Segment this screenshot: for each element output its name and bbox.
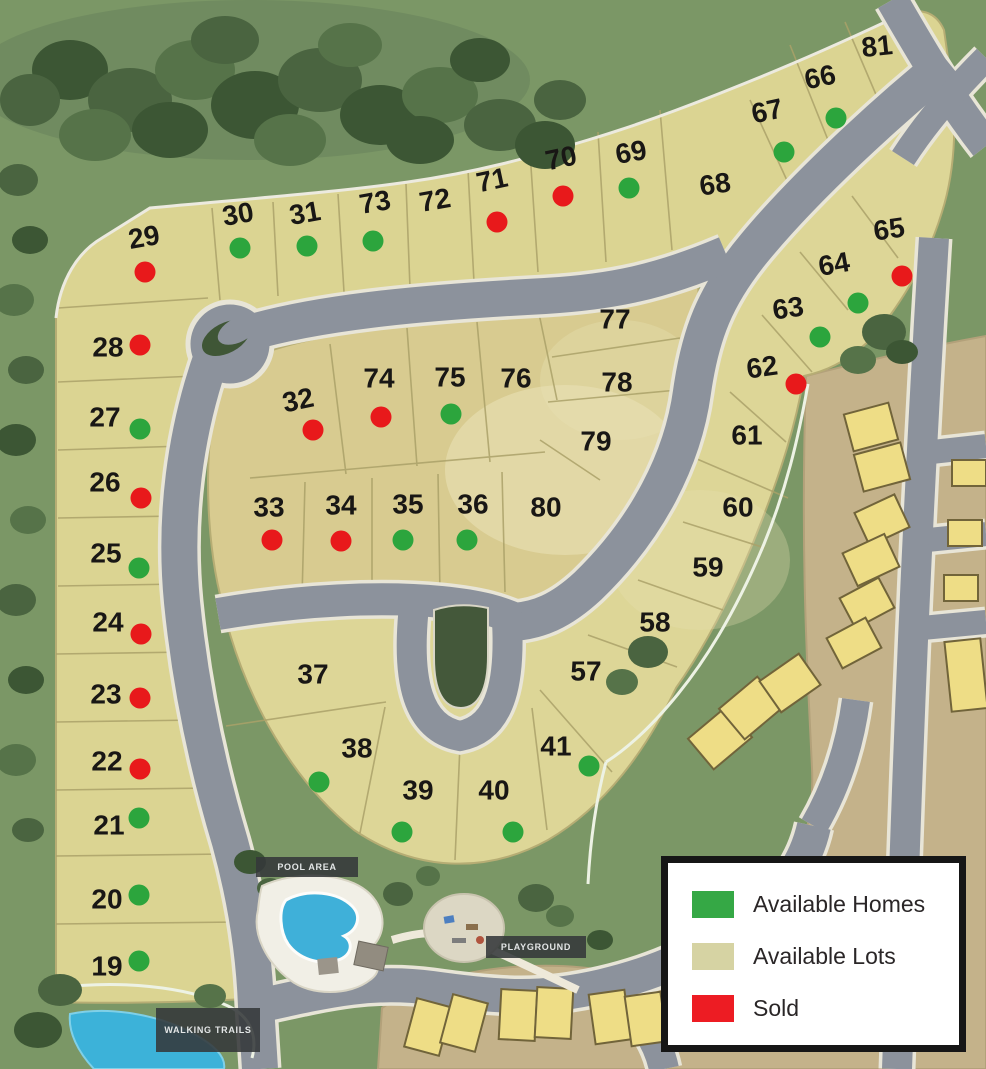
lot-number-label: 72: [417, 182, 453, 218]
lot-status-dot: [892, 266, 913, 287]
house-footprint: [499, 989, 538, 1041]
lot-number-label: 73: [357, 184, 393, 220]
lot-number-label: 31: [287, 195, 323, 231]
lot-status-dot: [230, 238, 251, 259]
lot-status-dot: [503, 822, 524, 843]
lot-number-label: 70: [543, 140, 580, 177]
lot-number-label: 29: [126, 219, 162, 255]
lot-number-label: 59: [692, 552, 723, 583]
lot-status-dot: [135, 262, 156, 283]
lot-status-dot: [826, 108, 847, 129]
lot-status-dot: [303, 420, 324, 441]
house-footprint: [948, 520, 982, 546]
legend-label: Sold: [753, 995, 799, 1022]
lot-number-label: 78: [601, 367, 632, 398]
lot-number-label: 24: [92, 607, 124, 638]
lot-number-label: 34: [325, 490, 357, 521]
lot-status-dot: [392, 822, 413, 843]
lot-number-label: 74: [363, 363, 395, 394]
lot-status-dot: [553, 186, 574, 207]
lot-number-label: 39: [402, 775, 433, 806]
lot-number-label: 68: [697, 166, 732, 201]
lot-80[interactable]: 80: [530, 492, 561, 523]
lot-number-label: 65: [871, 211, 906, 246]
legend: Available Homes Available Lots Sold: [661, 856, 966, 1052]
lot-status-dot: [130, 688, 151, 709]
lot-number-label: 36: [457, 489, 488, 520]
lot-number-label: 38: [341, 733, 372, 764]
legend-item-sold: Sold: [692, 995, 959, 1022]
lot-status-dot: [129, 885, 150, 906]
lot-77[interactable]: 77: [599, 304, 630, 335]
lot-status-dot: [579, 756, 600, 777]
legend-item-available-homes: Available Homes: [692, 891, 959, 918]
lot-number-label: 41: [540, 731, 571, 762]
lot-number-label: 76: [500, 363, 531, 394]
lot-number-label: 62: [744, 349, 779, 384]
lot-number-label: 25: [90, 538, 121, 569]
lot-status-dot: [297, 236, 318, 257]
lot-status-dot: [309, 772, 330, 793]
lot-status-dot: [129, 951, 150, 972]
lot-number-label: 26: [89, 467, 120, 498]
lot-status-dot: [393, 530, 414, 551]
lot-status-dot: [331, 531, 352, 552]
lot-status-dot: [262, 530, 283, 551]
lot-78[interactable]: 78: [601, 367, 632, 398]
lot-number-label: 40: [478, 775, 509, 806]
lot-number-label: 32: [280, 382, 317, 419]
lot-37[interactable]: 37: [297, 659, 328, 690]
lot-number-label: 67: [749, 93, 786, 130]
lot-72[interactable]: 72: [417, 182, 453, 218]
playground-icon: [424, 894, 504, 962]
lot-status-dot: [130, 759, 151, 780]
lot-number-label: 81: [860, 29, 894, 63]
legend-label: Available Lots: [753, 943, 896, 970]
house-footprint: [944, 575, 978, 601]
lot-number-label: 69: [613, 134, 649, 170]
lot-60[interactable]: 60: [722, 492, 753, 523]
lot-number-label: 71: [474, 162, 511, 199]
legend-label: Available Homes: [753, 891, 925, 918]
lot-number-label: 57: [570, 656, 601, 687]
lot-status-dot: [774, 142, 795, 163]
available-homes-swatch: [692, 891, 734, 918]
lot-number-label: 77: [599, 304, 630, 335]
lot-number-label: 63: [770, 290, 805, 325]
lot-number-label: 79: [580, 426, 611, 457]
lot-status-dot: [363, 231, 384, 252]
available-lots-swatch: [692, 943, 734, 970]
lot-status-dot: [848, 293, 869, 314]
lot-number-label: 22: [91, 746, 122, 777]
lot-status-dot: [441, 404, 462, 425]
lot-number-label: 28: [92, 332, 123, 363]
sold-swatch: [692, 995, 734, 1022]
lot-status-dot: [786, 374, 807, 395]
lot-68[interactable]: 68: [697, 166, 732, 201]
lot-number-label: 66: [802, 59, 839, 96]
lot-number-label: 27: [89, 402, 120, 433]
lot-58[interactable]: 58: [639, 607, 670, 638]
site-map: 1920212223242526272829303132333435363738…: [0, 0, 986, 1069]
lot-status-dot: [130, 419, 151, 440]
lot-status-dot: [131, 624, 152, 645]
lot-number-label: 21: [93, 810, 124, 841]
lot-status-dot: [131, 488, 152, 509]
lot-number-label: 20: [91, 884, 122, 915]
lot-number-label: 61: [731, 420, 762, 451]
lot-status-dot: [371, 407, 392, 428]
lot-79[interactable]: 79: [580, 426, 611, 457]
house-footprint: [944, 638, 986, 711]
lot-59[interactable]: 59: [692, 552, 723, 583]
lot-81[interactable]: 81: [860, 29, 894, 63]
pool-building: [317, 957, 339, 975]
lot-number-label: 37: [297, 659, 328, 690]
lot-status-dot: [487, 212, 508, 233]
lot-number-label: 75: [434, 362, 465, 393]
lot-number-label: 35: [392, 489, 423, 520]
lot-61[interactable]: 61: [731, 420, 762, 451]
lot-number-label: 33: [253, 492, 284, 523]
lot-57[interactable]: 57: [570, 656, 601, 687]
lot-status-dot: [129, 558, 150, 579]
house-footprint: [535, 987, 574, 1039]
lot-number-label: 23: [90, 679, 121, 710]
lot-number-label: 30: [220, 196, 256, 232]
lot-status-dot: [129, 808, 150, 829]
lot-number-label: 19: [91, 951, 122, 982]
lot-number-label: 80: [530, 492, 561, 523]
lot-status-dot: [810, 327, 831, 348]
house-footprint: [952, 460, 986, 486]
lot-76[interactable]: 76: [500, 363, 531, 394]
lot-number-label: 60: [722, 492, 753, 523]
legend-item-available-lots: Available Lots: [692, 943, 959, 970]
lot-number-label: 58: [639, 607, 670, 638]
lot-number-label: 64: [816, 246, 852, 282]
lot-status-dot: [457, 530, 478, 551]
lot-status-dot: [130, 335, 151, 356]
lot-status-dot: [619, 178, 640, 199]
